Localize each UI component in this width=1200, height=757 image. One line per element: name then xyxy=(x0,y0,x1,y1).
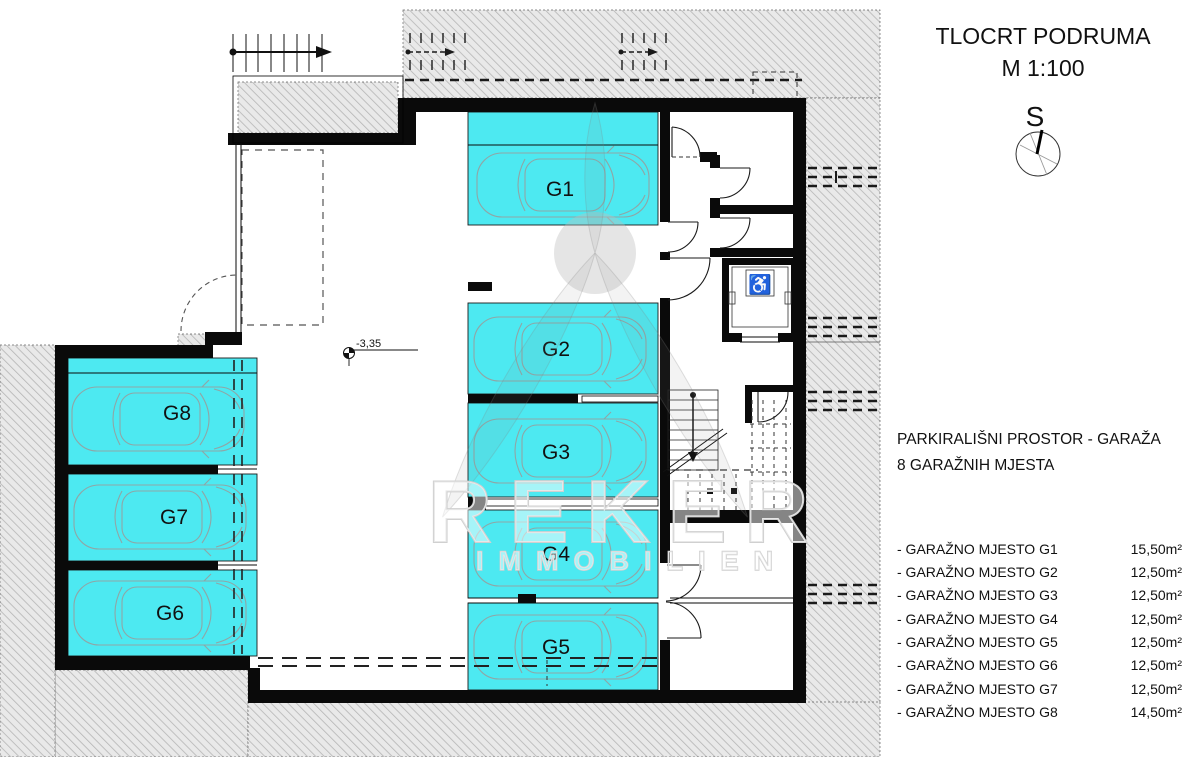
north-compass: S xyxy=(1016,101,1060,176)
legend-row-area: 15,50m² xyxy=(1131,541,1183,557)
floor-plan-page: ♿ xyxy=(0,0,1200,757)
legend-row-label: - GARAŽNO MJESTO G2 xyxy=(897,564,1058,580)
legend: PARKIRALIŠNI PROSTOR - GARAŽA 8 GARAŽNIH… xyxy=(897,431,1182,720)
legend-row-area: 14,50m² xyxy=(1131,704,1183,720)
legend-row-area: 12,50m² xyxy=(1131,587,1183,603)
hatch-left xyxy=(0,345,55,757)
legend-row-area: 12,50m² xyxy=(1131,634,1183,650)
hatch-ramp xyxy=(238,82,398,133)
hatch-bottom-left xyxy=(55,670,248,757)
legend-row-label: - GARAŽNO MJESTO G5 xyxy=(897,634,1058,650)
legend-row-area: 12,50m² xyxy=(1131,611,1183,627)
legend-row-label: - GARAŽNO MJESTO G6 xyxy=(897,657,1058,673)
summary-line1: PARKIRALIŠNI PROSTOR - GARAŽA xyxy=(897,431,1162,448)
dashed-platform xyxy=(242,150,323,325)
stall-label-g3: G3 xyxy=(542,441,570,464)
stall-g1 xyxy=(468,112,658,225)
legend-row-area: 12,50m² xyxy=(1131,657,1183,673)
compass-needle xyxy=(1037,130,1042,154)
stall-label-g6: G6 xyxy=(156,602,184,625)
watermark-sub: IMMOBILIEN xyxy=(476,546,788,576)
ramp-arrow xyxy=(230,34,333,72)
compass-label: S xyxy=(1026,101,1045,132)
summary-line2: 8 GARAŽNIH MJESTA xyxy=(897,457,1055,474)
legend-row-label: - GARAŽNO MJESTO G3 xyxy=(897,587,1058,603)
legend-row-area: 12,50m² xyxy=(1131,564,1183,580)
elevator: ♿ xyxy=(722,258,798,342)
stall-label-g8: G8 xyxy=(163,402,191,425)
stall-label-g1: G1 xyxy=(546,178,574,201)
stall-label-g7: G7 xyxy=(160,506,188,529)
title-block: TLOCRT PODRUMA M 1:100 S xyxy=(935,23,1151,176)
page-title: TLOCRT PODRUMA xyxy=(935,23,1151,49)
legend-row-label: - GARAŽNO MJESTO G4 xyxy=(897,611,1058,627)
entry-door-arc-dashed xyxy=(181,275,237,331)
hatch-top xyxy=(403,10,880,98)
level-marker: -3,35 xyxy=(344,338,419,366)
legend-row-label: - GARAŽNO MJESTO G8 xyxy=(897,704,1058,720)
legend-row-label: - GARAŽNO MJESTO G1 xyxy=(897,541,1058,557)
floor-plan-svg: ♿ xyxy=(0,0,1200,757)
level-label: -3,35 xyxy=(356,338,381,350)
legend-rows: - GARAŽNO MJESTO G1 15,50m² - GARAŽNO MJ… xyxy=(897,541,1182,720)
scale-label: M 1:100 xyxy=(1001,55,1084,81)
legend-row-area: 12,50m² xyxy=(1131,681,1183,697)
stall-label-g5: G5 xyxy=(542,636,570,659)
wheelchair-icon: ♿ xyxy=(748,273,772,296)
legend-row-label: - GARAŽNO MJESTO G7 xyxy=(897,681,1058,697)
hatch-bottom xyxy=(248,702,880,757)
